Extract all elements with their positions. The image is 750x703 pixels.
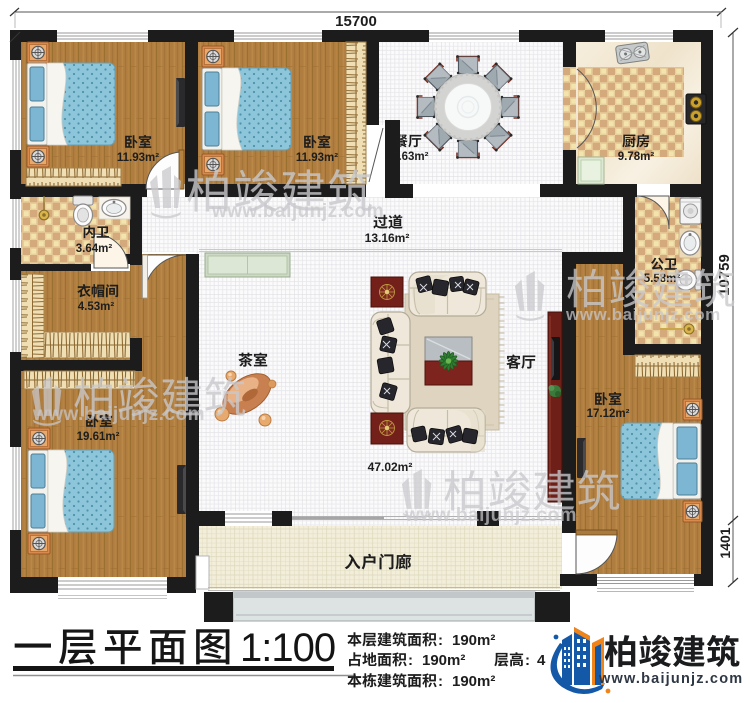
- svg-text::: :: [408, 652, 413, 669]
- svg-text:17.12m²: 17.12m²: [587, 408, 630, 420]
- svg-text:4: 4: [537, 652, 546, 669]
- svg-text:190m²: 190m²: [452, 632, 495, 649]
- svg-text:www.baijunjz.com: www.baijunjz.com: [598, 671, 743, 687]
- svg-text:13.63m²: 13.63m²: [386, 151, 429, 163]
- svg-text:www.baijunjz.com: www.baijunjz.com: [404, 505, 577, 526]
- svg-text::: :: [438, 673, 443, 690]
- svg-text:1401: 1401: [717, 527, 733, 558]
- svg-text:www.baijunjz.com: www.baijunjz.com: [211, 201, 384, 222]
- svg-text:19.61m²: 19.61m²: [77, 431, 120, 443]
- svg-text:9.78m²: 9.78m²: [618, 151, 655, 163]
- svg-text:4.53m²: 4.53m²: [78, 301, 115, 313]
- svg-text:www.baijunjz.com: www.baijunjz.com: [565, 305, 721, 324]
- svg-text:11.93m²: 11.93m²: [117, 152, 159, 164]
- svg-text:1:100: 1:100: [240, 626, 335, 670]
- svg-text:11.93m²: 11.93m²: [296, 152, 338, 164]
- svg-text:190m²: 190m²: [422, 652, 465, 669]
- svg-text:190m²: 190m²: [452, 673, 495, 690]
- svg-text::: :: [438, 632, 443, 649]
- svg-text:13.16m²: 13.16m²: [365, 231, 410, 245]
- svg-text::: :: [525, 652, 530, 669]
- svg-text:15700: 15700: [335, 13, 377, 30]
- svg-text:3.64m²: 3.64m²: [76, 243, 113, 255]
- svg-text:47.02m²: 47.02m²: [368, 460, 413, 474]
- svg-text:www.baijunjz.com: www.baijunjz.com: [32, 404, 205, 425]
